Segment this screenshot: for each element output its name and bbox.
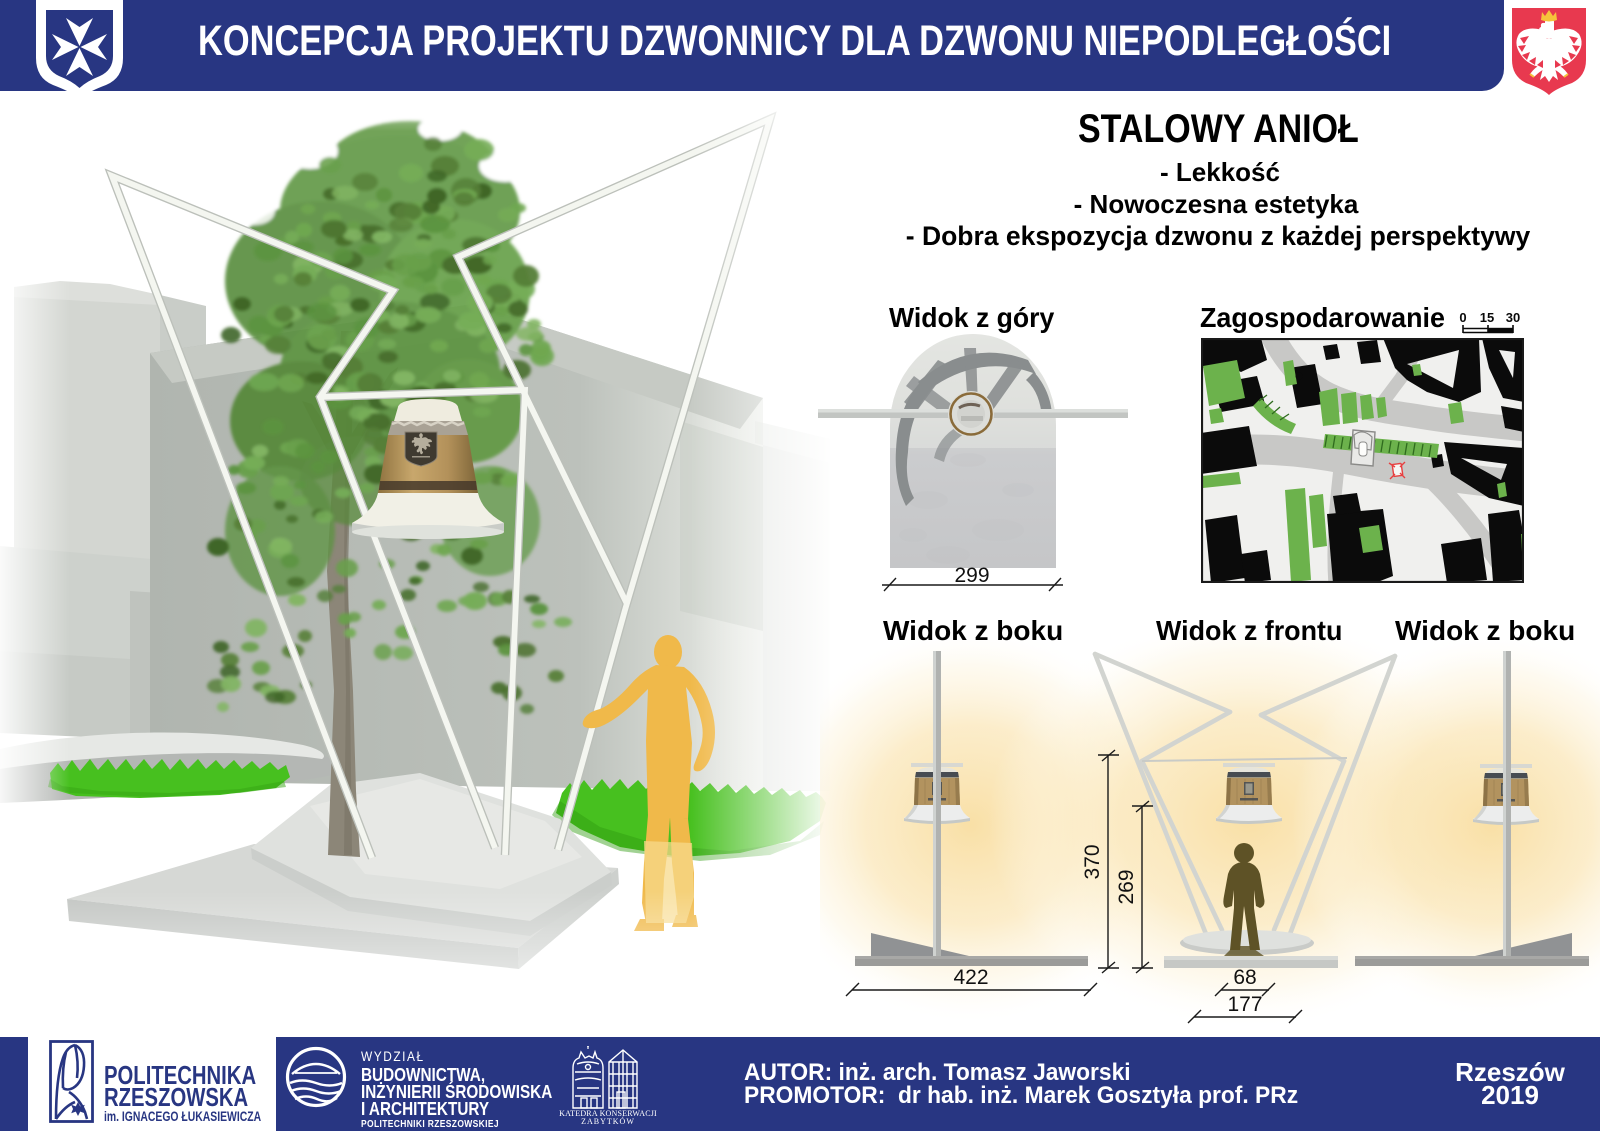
svg-text:299: 299	[954, 564, 989, 587]
svg-text:370: 370	[1081, 844, 1104, 879]
svg-text:269: 269	[1115, 869, 1138, 904]
svg-text:0: 0	[1459, 310, 1466, 325]
svg-text:422: 422	[953, 966, 988, 989]
svg-text:30: 30	[1506, 310, 1520, 325]
svg-text:15: 15	[1480, 310, 1494, 325]
svg-text:68: 68	[1233, 966, 1256, 989]
svg-text:177: 177	[1227, 993, 1262, 1016]
